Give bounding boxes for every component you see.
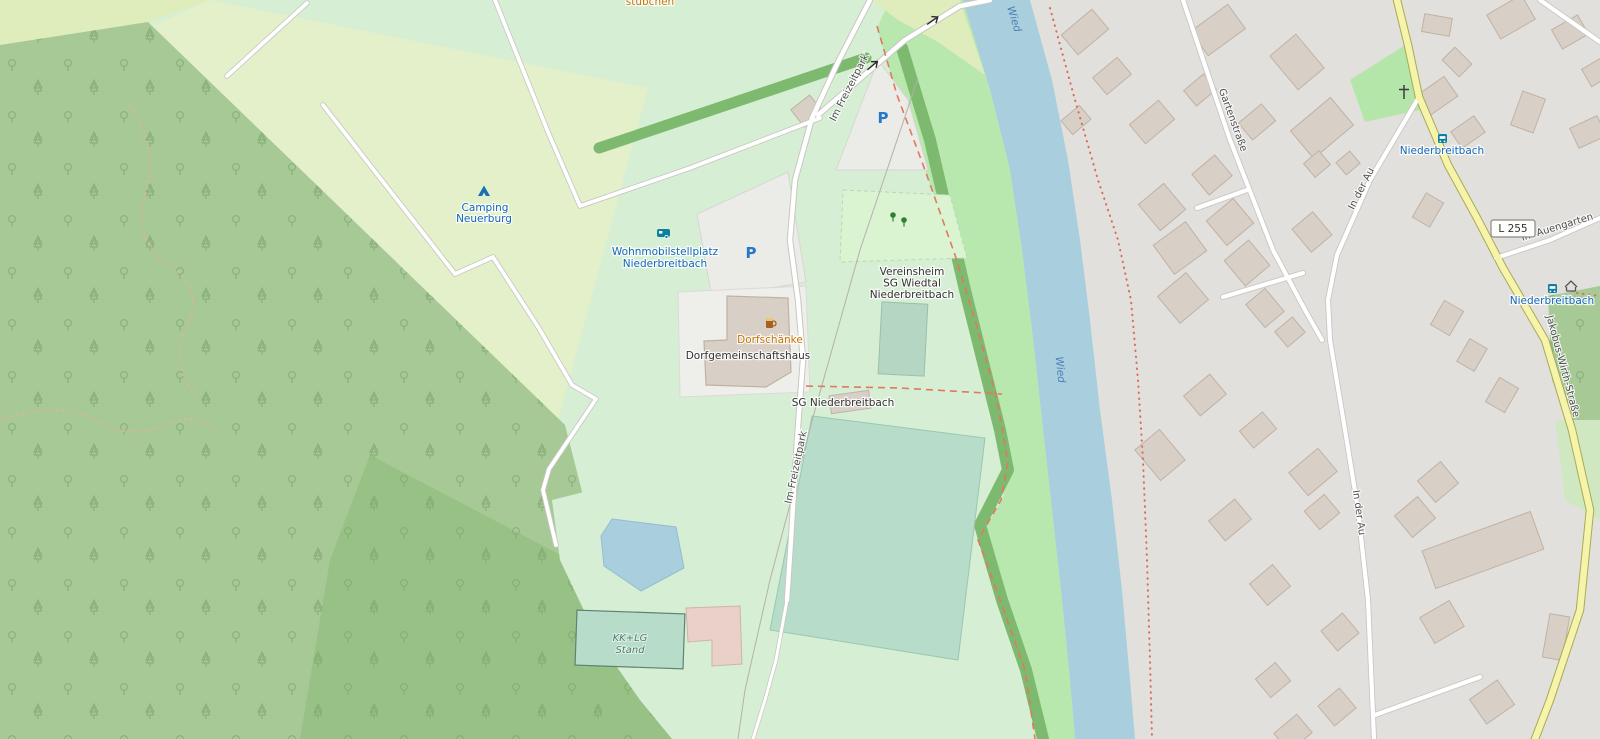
vereinsheim-label-line1: Vereinsheim: [880, 266, 945, 278]
bus-stop-label-north: Niederbreitbach: [1400, 145, 1484, 157]
womo-label-line2: Niederbreitbach: [623, 258, 707, 270]
bus-stop-label-south: Niederbreitbach: [1510, 295, 1594, 307]
vereinsheim-label-line3: Niederbreitbach: [870, 289, 954, 301]
road-ref-text: L 255: [1498, 223, 1527, 235]
camping-label-line2: Neuerburg: [456, 213, 512, 225]
map-canvas[interactable]: stübchen Camping Neuerburg Wohnmobilstel…: [0, 0, 1600, 739]
parking-symbol-north: P: [878, 109, 889, 127]
dorfschaenke-label: Dorfschänke: [737, 334, 803, 346]
stuebchen-label: stübchen: [626, 0, 674, 8]
womo-label-line1: Wohnmobilstellplatz: [612, 246, 719, 258]
map-viewport[interactable]: stübchen Camping Neuerburg Wohnmobilstel…: [0, 0, 1600, 739]
kklg-label-line1: KK+LG: [613, 633, 648, 644]
bus-stop-icon: [1548, 284, 1557, 293]
parking-symbol-womo: P: [746, 244, 757, 262]
bus-stop-icon: [1438, 134, 1447, 143]
dorfgemeinschaftshaus-label: Dorfgemeinschaftshaus: [686, 350, 811, 362]
vereinsheim-label-line2: SG Wiedtal: [883, 278, 941, 290]
road-ref-badge: L 255: [1491, 220, 1535, 237]
vereinsheim-building: [878, 302, 928, 376]
kklg-label-line2: Stand: [615, 645, 645, 656]
sg-niederbreitbach-label: SG Niederbreitbach: [792, 397, 895, 409]
